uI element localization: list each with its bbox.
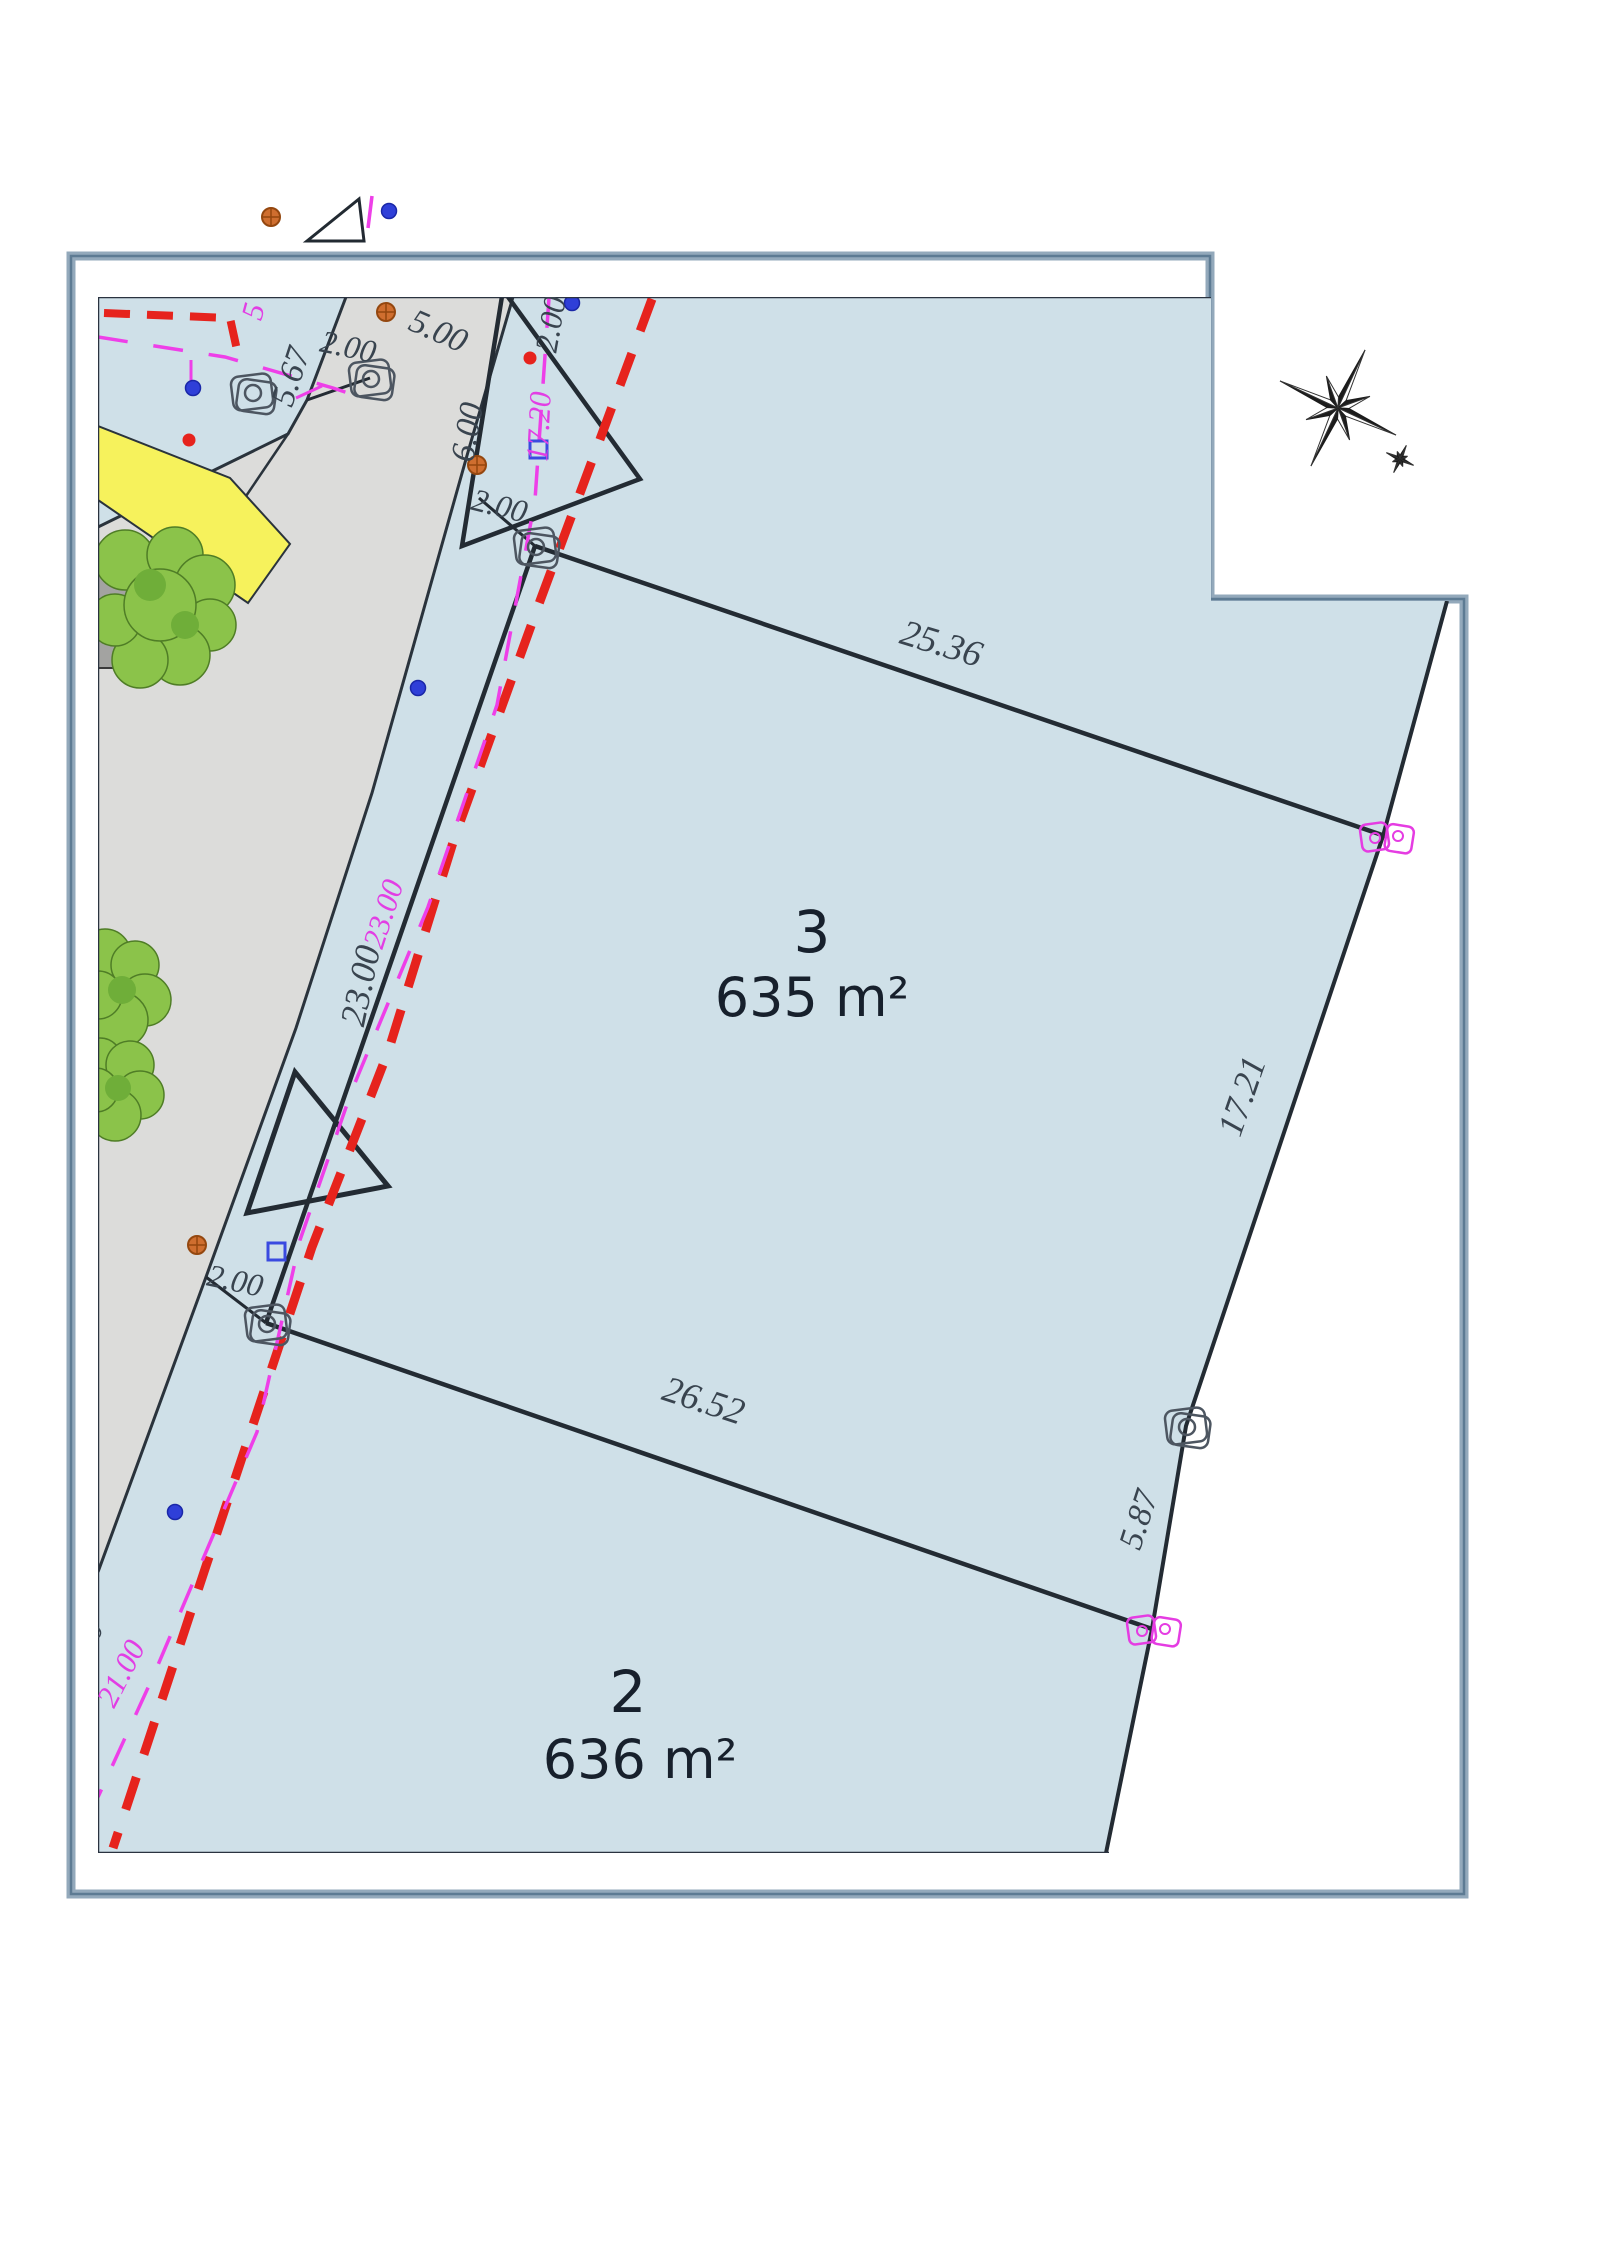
blue-point (186, 381, 201, 396)
magenta-tick (368, 196, 372, 228)
parcel3-area-label: 635 m² (715, 966, 909, 1029)
north-arrow (1280, 350, 1396, 466)
survey-triangle-margin (307, 199, 364, 241)
plan-sheet: 25.36 17.21 26.52 5.87 23.00 5.67 5.00 6… (0, 0, 1600, 2268)
red-point (183, 434, 196, 447)
orange-point (262, 208, 280, 226)
orange-point (377, 303, 395, 321)
parcel2-number-label: 2 (610, 1658, 647, 1726)
blue-point (168, 1505, 183, 1520)
red-point (524, 352, 537, 365)
parcel2-area-label: 636 m² (543, 1728, 737, 1791)
utility-label-upper: 17.20 (519, 390, 558, 462)
orange-point (188, 1236, 206, 1254)
blue-point (411, 681, 426, 696)
north-arrow-mini (1386, 445, 1413, 472)
blue-point (382, 204, 397, 219)
margin-annotations (262, 196, 397, 241)
parcel3-number-label: 3 (794, 898, 831, 966)
